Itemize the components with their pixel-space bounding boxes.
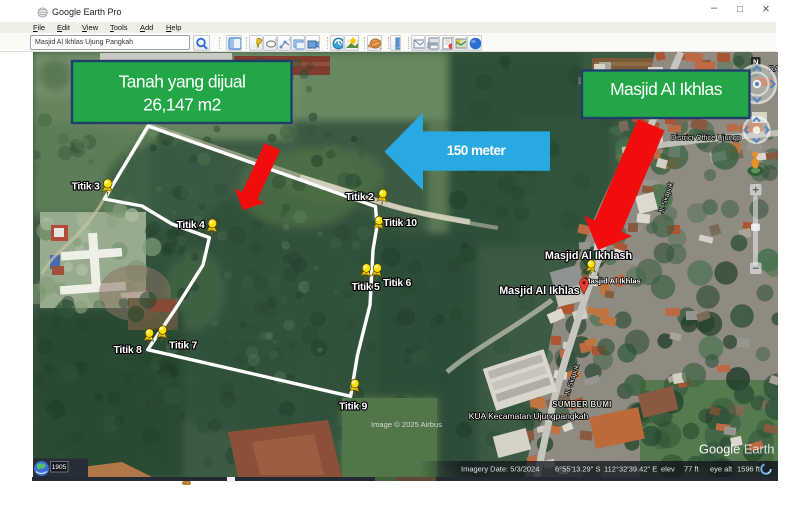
svg-text:eye alt: eye alt	[710, 465, 733, 474]
svg-text:Masjid Al Ikhlas: Masjid Al Ikhlas	[499, 285, 580, 297]
svg-text:Titik 9: Titik 9	[339, 401, 368, 413]
svg-text:Titik 6: Titik 6	[383, 277, 412, 289]
svg-text:KUA Kecamatan Ujungpangkah: KUA Kecamatan Ujungpangkah	[469, 411, 589, 421]
svg-text:6°55'13.29" S: 6°55'13.29" S	[555, 465, 600, 474]
svg-text:26,147 m2: 26,147 m2	[143, 95, 221, 115]
svg-text:112°32'39.42" E: 112°32'39.42" E	[604, 465, 657, 474]
svg-text:Titik 10: Titik 10	[383, 217, 417, 229]
svg-text:Titik 4: Titik 4	[176, 219, 205, 231]
svg-text:SUMBER BUMI: SUMBER BUMI	[552, 400, 611, 409]
svg-text:Image © 2025 Airbus: Image © 2025 Airbus	[371, 420, 442, 429]
svg-text:Titik 2: Titik 2	[345, 191, 374, 203]
svg-text:1905: 1905	[52, 464, 67, 471]
svg-text:77 ft: 77 ft	[684, 465, 700, 474]
svg-text:Masjid Al Ikhlas: Masjid Al Ikhlas	[584, 277, 641, 286]
svg-text:Imagery Date: 5/3/2024: Imagery Date: 5/3/2024	[461, 465, 539, 474]
svg-text:Masjid Al Ikhlash: Masjid Al Ikhlash	[545, 250, 632, 262]
svg-text:elev: elev	[661, 465, 675, 474]
svg-text:District Office Ujungp: District Office Ujungp	[671, 133, 741, 142]
svg-text:Google Earth: Google Earth	[699, 442, 774, 457]
svg-text:Tanah yang dijual: Tanah yang dijual	[119, 72, 246, 92]
svg-text:Titik 5: Titik 5	[351, 281, 380, 293]
svg-text:Titik 7: Titik 7	[169, 340, 198, 352]
svg-text:Titik 3: Titik 3	[71, 181, 100, 193]
svg-text:Masjid Al Ikhlas: Masjid Al Ikhlas	[610, 79, 723, 99]
svg-text:150 meter: 150 meter	[447, 143, 507, 158]
svg-text:Titik 8: Titik 8	[113, 344, 142, 356]
svg-text:1596 ft: 1596 ft	[737, 465, 761, 474]
